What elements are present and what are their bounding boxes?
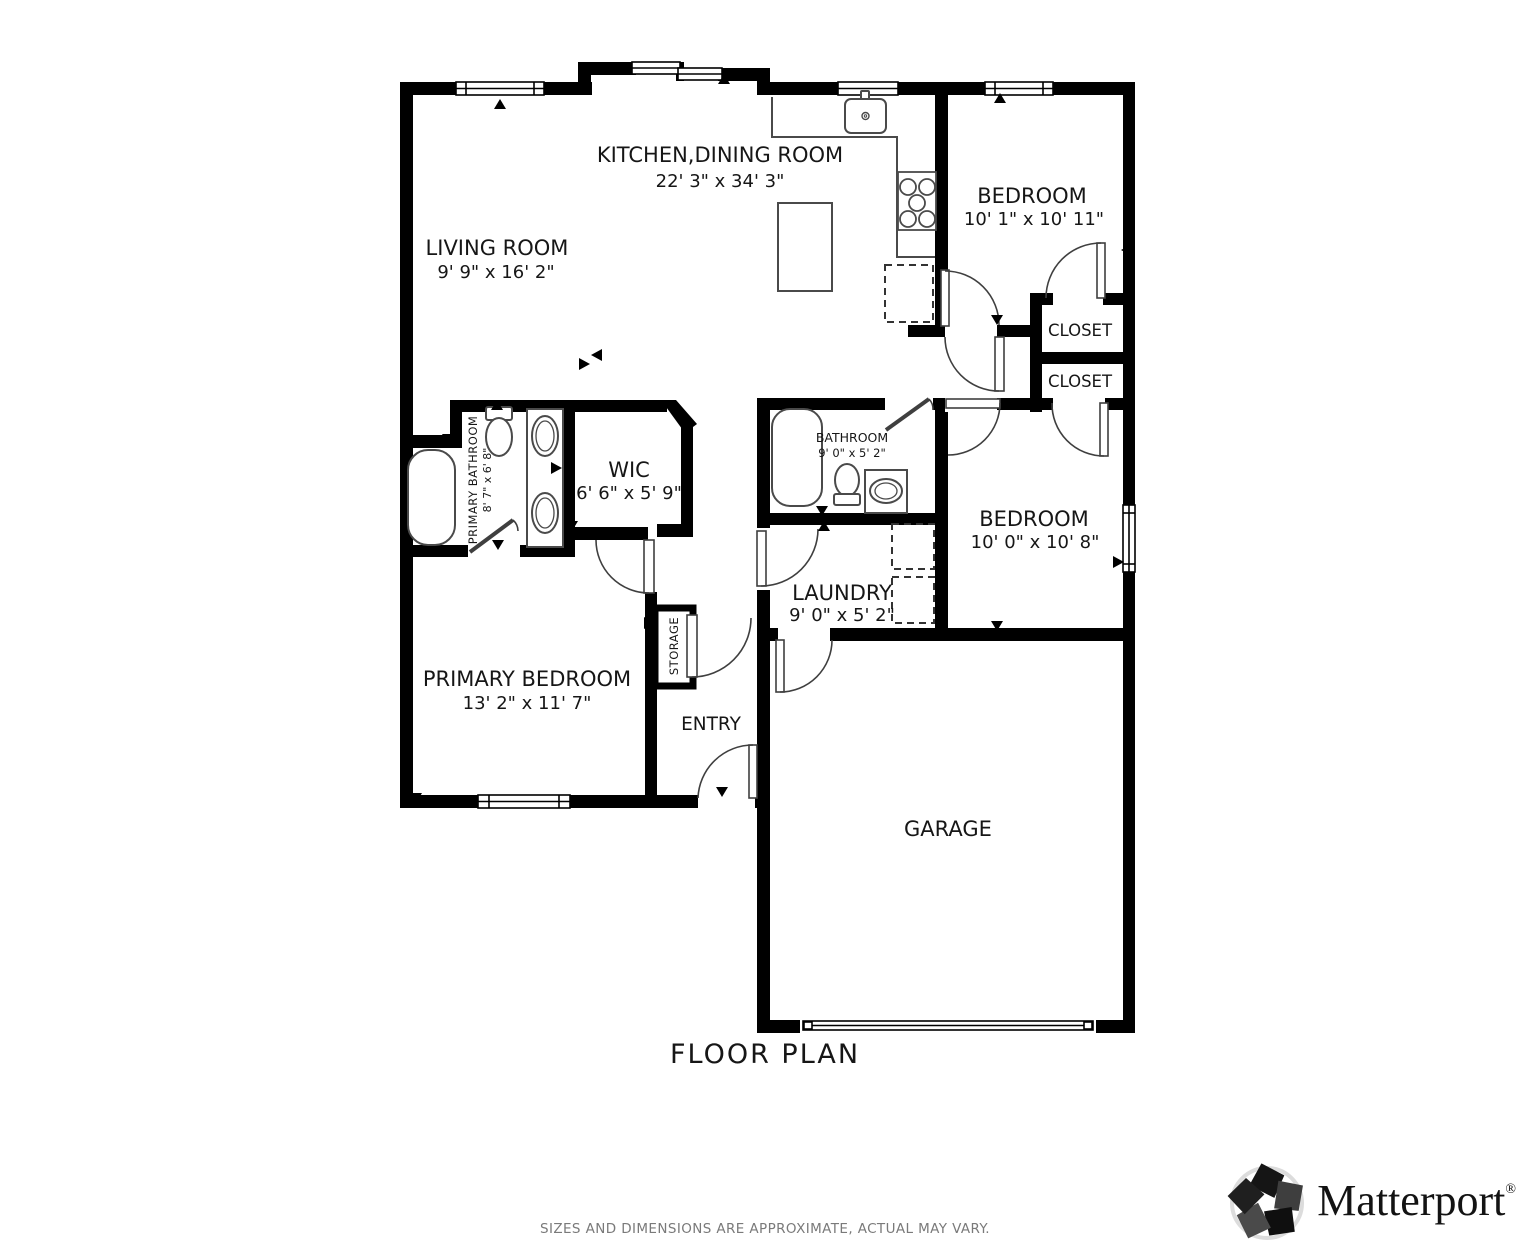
label-entry: ENTRY [681, 714, 741, 735]
entry-door [698, 745, 757, 798]
page-title: FLOOR PLAN [670, 1039, 860, 1070]
label-primary-bedroom: PRIMARY BEDROOM [423, 667, 631, 691]
brand-logo: Matterport® [1223, 1157, 1516, 1245]
dims-primary-bedroom: 13' 2" x 11' 7" [463, 693, 592, 714]
bathroom-sink-icon [865, 470, 907, 513]
kitchen-sink-icon [845, 91, 886, 133]
window-kitchen-upper-left [632, 62, 680, 74]
hallway-door [945, 337, 1004, 391]
primary-bath-tub-icon [408, 450, 455, 545]
floor-plan-page: KITCHEN,DINING ROOM 22' 3" x 34' 3" LIVI… [0, 0, 1530, 1253]
dims-bathroom: 9' 0" x 5' 2" [818, 446, 886, 460]
label-bedroom-middle: BEDROOM [979, 507, 1089, 531]
primary-bath-vanity-icon [527, 409, 563, 547]
garage-interior-door [776, 640, 832, 692]
brand-name: Matterport [1317, 1176, 1505, 1225]
laundry-door [757, 529, 818, 586]
label-garage: GARAGE [904, 817, 992, 841]
dims-primary-bathroom: 8' 7" x 6' 8" [481, 448, 494, 513]
window-bedroom-middle [1123, 505, 1135, 572]
label-wic: WIC [608, 458, 650, 482]
label-closet-upper: CLOSET [1048, 321, 1113, 340]
brand-wordmark: Matterport® [1317, 1179, 1516, 1223]
label-bathroom: BATHROOM [816, 430, 888, 445]
window-kitchen-upper-right [678, 68, 722, 80]
closet-upper-door [1046, 243, 1105, 298]
dims-laundry: 9' 0" x 5' 2" [789, 605, 895, 626]
matterport-pinwheel-icon [1223, 1157, 1311, 1245]
washer-dashed [892, 524, 934, 569]
dims-bedroom-top: 10' 1" x 10' 11" [964, 209, 1104, 230]
kitchen-island [778, 203, 832, 291]
bedroom-middle-door [946, 399, 1000, 455]
bathroom-toilet-icon [834, 464, 860, 505]
dims-bedroom-middle: 10' 0" x 10' 8" [971, 532, 1100, 553]
dims-kitchen-dining: 22' 3" x 34' 3" [656, 171, 785, 192]
label-laundry: LAUNDRY [792, 581, 892, 605]
label-kitchen-dining: KITCHEN,DINING ROOM [597, 143, 843, 167]
dryer-dashed [892, 577, 934, 623]
window-living-top [456, 82, 544, 95]
registered-mark: ® [1505, 1182, 1516, 1197]
label-bedroom-top: BEDROOM [977, 184, 1087, 208]
label-living-room: LIVING ROOM [426, 236, 569, 260]
window-primary-bedroom [478, 795, 570, 808]
disclaimer-text: SIZES AND DIMENSIONS ARE APPROXIMATE, AC… [540, 1221, 990, 1237]
primary-bedroom-door [596, 540, 654, 593]
label-storage: STORAGE [667, 617, 681, 675]
window-bedroom-top [985, 82, 1053, 95]
bathroom-tub-icon [772, 409, 822, 506]
bedroom-top-door [941, 270, 999, 326]
stove-icon [898, 172, 936, 230]
label-closet-lower: CLOSET [1048, 372, 1113, 391]
label-primary-bathroom: PRIMARY BATHROOM [466, 416, 480, 545]
floor-plan-drawing: KITCHEN,DINING ROOM 22' 3" x 34' 3" LIVI… [0, 0, 1530, 1253]
dims-wic: 6' 6" x 5' 9" [576, 483, 682, 504]
dims-living-room: 9' 9" x 16' 2" [437, 262, 554, 283]
dashed-appliances [885, 265, 934, 623]
refrigerator-dashed [885, 265, 933, 322]
garage-door [803, 1021, 1093, 1030]
